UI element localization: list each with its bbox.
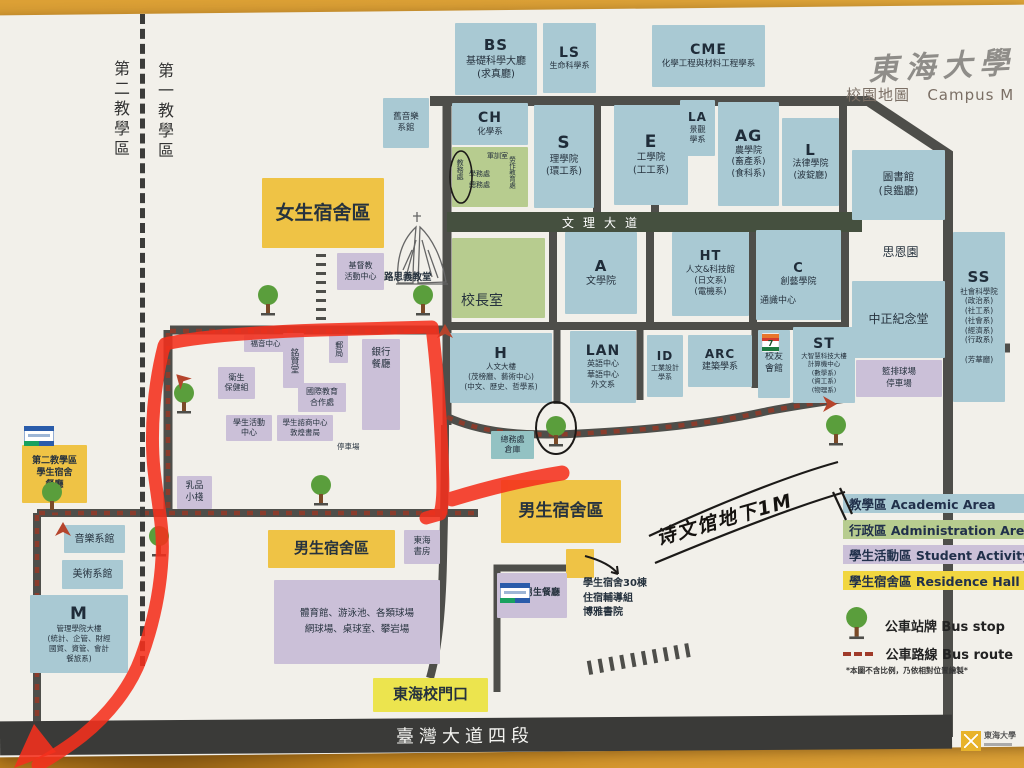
- bus-stop-tree-icon: [843, 606, 870, 646]
- legend-area-2: 學生活動區 Student Activity: [843, 545, 1024, 564]
- taiwan-blvd-label: 臺灣大道四段: [396, 722, 534, 749]
- wenli-avenue: 文理大道: [447, 212, 862, 232]
- map-title-en: Campus M: [927, 86, 1014, 104]
- legend-area-3: 學生宿舍區 Residence Hall: [843, 571, 1024, 590]
- teaching-zone-divider: [140, 14, 145, 666]
- legend-area-1: 行政區 Administration Area: [843, 520, 1024, 539]
- footer-logo-subline: [984, 743, 1012, 746]
- legend-footnote: *本圖不含比例，乃依相對位置繪製*: [846, 665, 968, 676]
- footer-logo: 東海大學: [961, 731, 1016, 751]
- map-title: 校園地圖 Campus M: [846, 84, 1024, 105]
- legend-area-0: 教學區 Academic Area: [843, 494, 1024, 513]
- legend-bus-route: 公車路線 Bus route: [843, 644, 1013, 663]
- map-title-zh: 校園地圖: [846, 86, 910, 104]
- footer-logo-label: 東海大學: [984, 731, 1016, 741]
- stairs-path: [316, 249, 326, 329]
- legend-bus-stop: 公車站牌 Bus stop: [843, 606, 1005, 646]
- tunghai-logo-icon: [961, 731, 981, 751]
- bus-route-dash-icon: [843, 652, 873, 656]
- wenli-avenue-label: 文理大道: [562, 214, 646, 231]
- legend-bus-stop-label: 公車站牌 Bus stop: [885, 620, 1005, 635]
- taiwan-blvd: 臺灣大道四段: [0, 715, 952, 756]
- legend-bus-route-label: 公車路線 Bus route: [886, 648, 1014, 663]
- zone-label-second: 第二教學區: [108, 60, 132, 160]
- zone-label-first: 第一教學區: [152, 62, 176, 162]
- campus-map-photo: 文理大道 臺灣大道四段 BS基礎科學大廳 (求真廳)LS生命科學系CME化學工程…: [0, 0, 1024, 768]
